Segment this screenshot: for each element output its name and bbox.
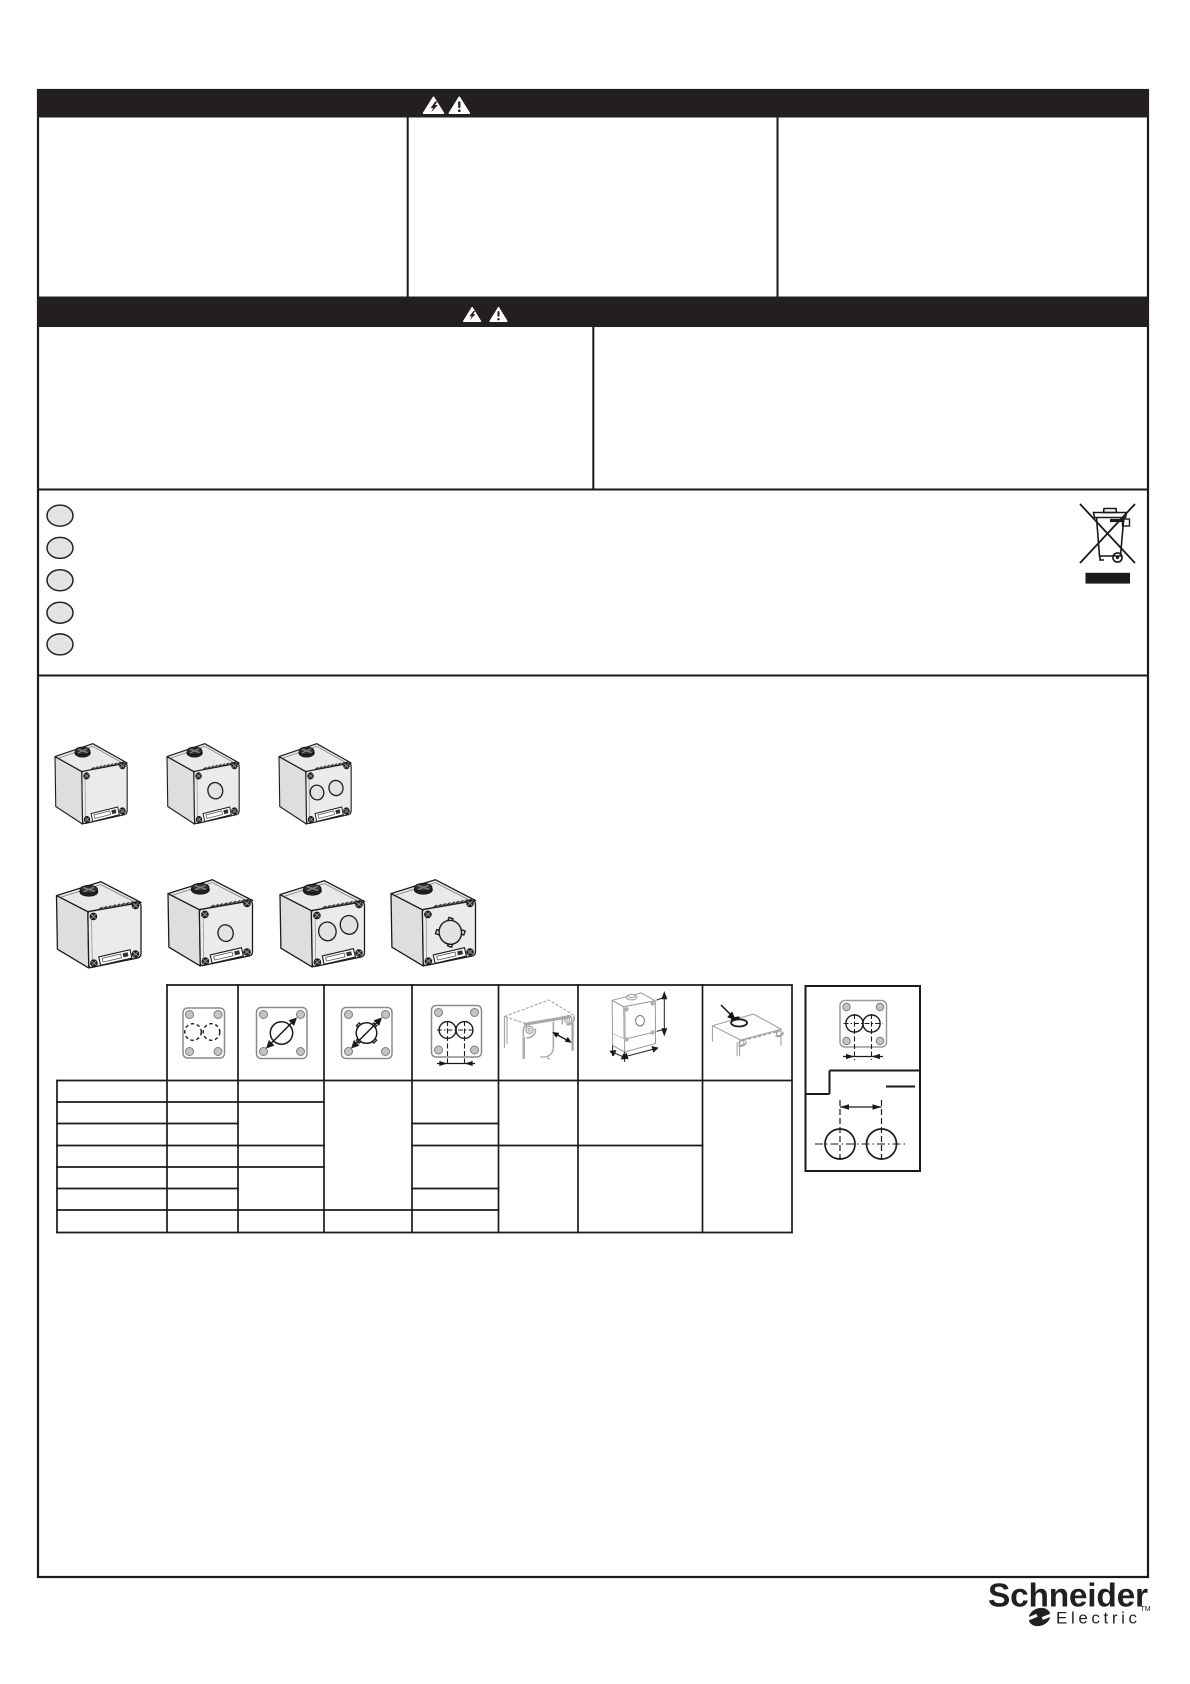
svg-text:Electric: Electric (1056, 1609, 1140, 1628)
svg-text:TM: TM (1141, 1606, 1151, 1613)
